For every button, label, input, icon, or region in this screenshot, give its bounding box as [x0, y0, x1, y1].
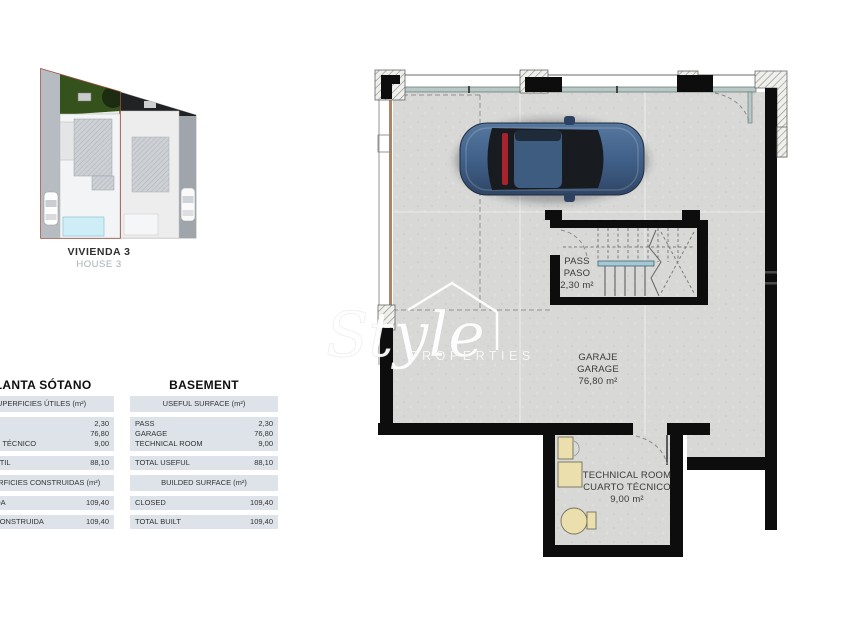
technical-room-left-wall: [543, 423, 555, 557]
built-surface-header-es: SUPERFICIES CONSTRUIDAS (m²): [0, 475, 114, 491]
total-label: TOTAL ÚTIL: [0, 458, 11, 468]
technical-room-bottom-wall: [543, 545, 683, 557]
room-name-alt: CUARTO TÉCNICO: [558, 482, 696, 494]
room-name: GARAJE: [538, 352, 658, 364]
total-label: TOTAL USEFUL: [135, 458, 190, 468]
stair-box-bottom-wall: [550, 297, 708, 305]
row-value: 76,80: [254, 429, 273, 439]
row-cuarto-tecnico: CUARTO TÉCNICO 9,00: [0, 439, 109, 449]
vivienda-label: VIVIENDA 3: [38, 246, 160, 258]
closed-band: CLOSED 109,40: [130, 496, 278, 510]
cerrada-band: CERRADA 109,40: [0, 496, 114, 510]
row-garaje: GARAJE 76,80: [0, 429, 109, 439]
closed-label: CLOSED: [135, 498, 166, 508]
left-pier: [378, 305, 395, 330]
total-built-band: TOTAL BUILT 109,40: [130, 515, 278, 529]
right-wall-pier: [777, 127, 787, 157]
house-label: HOUSE 3: [38, 259, 160, 270]
total-built-value: 109,40: [86, 517, 109, 527]
stair-box-right-wall: [697, 220, 708, 305]
lower-right-wall: [687, 457, 777, 470]
stair-box-top-wall: [550, 220, 708, 228]
table-title-en: BASEMENT: [130, 378, 278, 392]
site-car-right: [181, 188, 195, 221]
site-plot-house4: [120, 92, 196, 238]
total-construida-band: TOTAL CONSTRUIDA 109,40: [0, 515, 114, 529]
water-tank: [561, 508, 587, 534]
closed-label: CERRADA: [0, 498, 6, 508]
row-label: GARAGE: [135, 429, 167, 439]
row-value: 2,30: [94, 419, 109, 429]
garage-bottom-wall: [378, 423, 633, 435]
row-value: 9,00: [94, 439, 109, 449]
row-value: 2,30: [258, 419, 273, 429]
row-technical-room: TECHNICAL ROOM 9,00: [135, 439, 273, 449]
site-plan-thumbnail: [36, 64, 198, 242]
useful-rows-es: PASO 2,30 GARAJE 76,80 CUARTO TÉCNICO 9,…: [0, 417, 114, 451]
site-pool: [63, 217, 104, 236]
left-wall: [380, 328, 393, 435]
closed-value: 109,40: [250, 498, 273, 508]
parked-car: [455, 116, 649, 203]
total-built-label: TOTAL CONSTRUIDA: [0, 517, 44, 527]
total-built-value: 109,40: [250, 517, 273, 527]
brochure-page: VIVIENDA 3 HOUSE 3 PLANTA SÓTANO SUPERFI…: [0, 0, 850, 620]
site-pool-outline: [124, 214, 158, 235]
car-sunroof: [515, 130, 561, 141]
useful-surface-header-es: SUPERFICIES ÚTILES (m²): [0, 396, 114, 412]
useful-surface-header-en: USEFUL SURFACE (m²): [130, 396, 278, 412]
total-value: 88,10: [90, 458, 109, 468]
room-name-alt: PASO: [546, 268, 608, 280]
total-value: 88,10: [254, 458, 273, 468]
car-mirror-top: [564, 116, 575, 125]
row-label: CUARTO TÉCNICO: [0, 439, 36, 449]
table-planta-sotano: PLANTA SÓTANO SUPERFICIES ÚTILES (m²) PA…: [0, 378, 114, 534]
site-plan-caption: VIVIENDA 3 HOUSE 3: [38, 246, 160, 270]
garage-room-label: GARAJE GARAGE 76,80 m²: [538, 352, 658, 388]
total-useful-band: TOTAL USEFUL 88,10: [130, 456, 278, 470]
useful-rows-en: PASS 2,30 GARAGE 76,80 TECHNICAL ROOM 9,…: [130, 417, 278, 451]
technical-room-label: TECHNICAL ROOM CUARTO TÉCNICO 9,00 m²: [558, 470, 696, 506]
row-pass: PASS 2,30: [135, 419, 273, 429]
row-garage: GARAGE 76,80: [135, 429, 273, 439]
table-title-es: PLANTA SÓTANO: [0, 378, 114, 392]
room-name-alt: GARAGE: [538, 364, 658, 376]
row-value: 9,00: [258, 439, 273, 449]
site-roof-hatch: [74, 119, 112, 176]
row-label: TECHNICAL ROOM: [135, 439, 203, 449]
row-value: 76,80: [90, 429, 109, 439]
retaining-wall-line: [389, 100, 392, 310]
equipment-unit: [587, 512, 596, 529]
built-surface-header-en: BUILDED SURFACE (m²): [130, 475, 278, 491]
row-label: PASS: [135, 419, 154, 429]
car-brake-light: [502, 133, 508, 185]
equipment-cabinet-small: [558, 437, 573, 459]
site-car-left: [44, 192, 58, 225]
table-basement: BASEMENT USEFUL SURFACE (m²) PASS 2,30 G…: [130, 378, 278, 534]
closed-value: 109,40: [86, 498, 109, 508]
room-name: TECHNICAL ROOM: [558, 470, 696, 482]
pass-room-label: PASS PASO 2,30 m²: [546, 256, 608, 292]
room-area: 9,00 m²: [558, 494, 696, 506]
room-name: PASS: [546, 256, 608, 268]
total-util-band: TOTAL ÚTIL 88,10: [0, 456, 114, 470]
site-plot-house3: [41, 69, 124, 238]
total-built-label: TOTAL BUILT: [135, 517, 181, 527]
room-area: 2,30 m²: [546, 280, 608, 292]
row-paso: PASO 2,30: [0, 419, 109, 429]
car-mirror-bottom: [564, 193, 575, 202]
room-area: 76,80 m²: [538, 376, 658, 388]
